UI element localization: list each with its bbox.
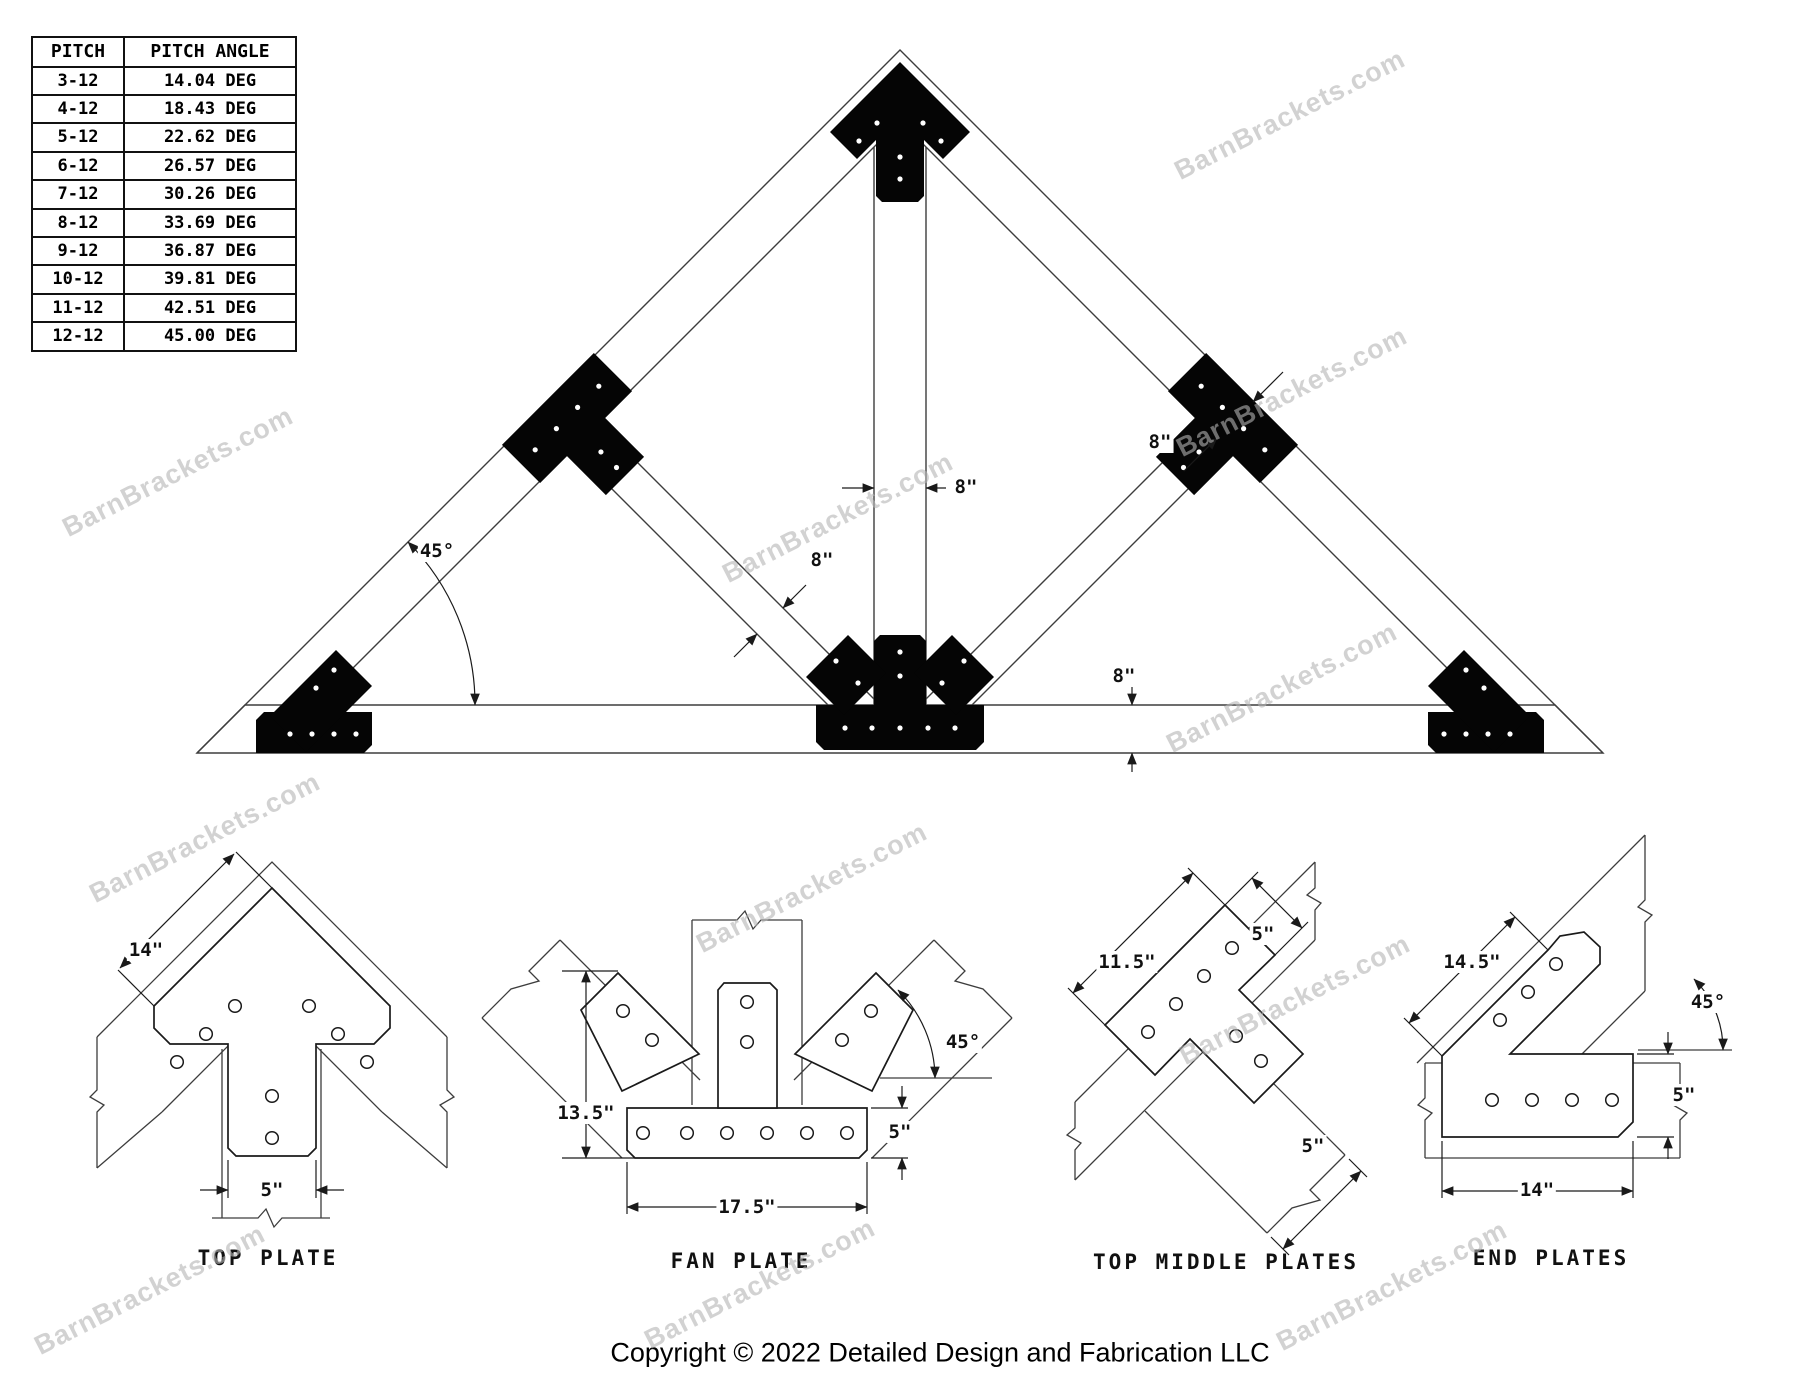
left-t-bracket [502,353,671,522]
pitch-table-cell: 14.04 DEG [124,67,296,95]
pitch-table-cell: 45.00 DEG [124,322,296,350]
copyright-text: Copyright © 2022 Detailed Design and Fab… [610,1338,1269,1369]
pitch-table-cell: 26.57 DEG [124,152,296,180]
dim-rafter-depth: 8" [1147,431,1174,453]
fan-plate-dim-angle: 45° [944,1031,982,1053]
top-plate-dim-slot: 5" [259,1179,286,1201]
pitch-table-cell: 39.81 DEG [124,265,296,293]
pitch-table-cell: 4-12 [32,95,124,123]
pitch-table-row: 6-1226.57 DEG [32,152,296,180]
pitch-table-row: 11-1242.51 DEG [32,294,296,322]
detail-plates [154,888,1633,1158]
pitch-table-row: 8-1233.69 DEG [32,209,296,237]
pitch-table-cell: 10-12 [32,265,124,293]
pitch-angle-header: PITCH ANGLE [124,37,296,67]
rafter-inner-edges [316,121,1484,705]
truss-bracket-drawing-page: { "watermark": { "text": "BarnBrackets.c… [0,0,1800,1391]
pitch-table-cell: 22.62 DEG [124,123,296,151]
pitch-table-cell: 12-12 [32,322,124,350]
pitch-header: PITCH [32,37,124,67]
end-plates-dim-edge: 14.5" [1441,951,1502,973]
pitch-table-cell: 30.26 DEG [124,180,296,208]
pitch-table-cell: 7-12 [32,180,124,208]
pitch-table-cell: 5-12 [32,123,124,151]
end-plates-dim-base: 14" [1518,1179,1556,1201]
top-middle-plates-title: TOP MIDDLE PLATES [1093,1250,1359,1274]
apex-arrow-bracket [830,62,970,202]
pitch-table-cell: 3-12 [32,67,124,95]
pitch-table-cell: 9-12 [32,237,124,265]
pitch-table-cell: 42.51 DEG [124,294,296,322]
pitch-table: PITCH PITCH ANGLE 3-1214.04 DEG4-1218.43… [31,36,297,352]
pitch-table-cell: 33.69 DEG [124,209,296,237]
pitch-table-row: 3-1214.04 DEG [32,67,296,95]
pitch-table-header-row: PITCH PITCH ANGLE [32,37,296,67]
truss-brackets [256,62,1544,753]
fan-plate-dim-base-height: 5" [887,1121,914,1143]
pitch-table-cell: 18.43 DEG [124,95,296,123]
end-plates-title: END PLATES [1473,1246,1629,1270]
pitch-table-cell: 36.87 DEG [124,237,296,265]
end-plates-dim-angle: 45° [1689,991,1727,1013]
pitch-table-cell: 6-12 [32,152,124,180]
end-plates-dim-height: 5" [1671,1084,1698,1106]
pitch-table-row: 9-1236.87 DEG [32,237,296,265]
bottom-fan-bracket [806,635,994,750]
top-middle-dim-width-lower: 5" [1300,1135,1327,1157]
top-plate-title: TOP PLATE [198,1246,339,1270]
pitch-table-row: 4-1218.43 DEG [32,95,296,123]
fan-plate-dim-height: 13.5" [555,1102,616,1124]
pitch-table-row: 12-1245.00 DEG [32,322,296,350]
top-plate-dim-edge: 14" [127,939,165,961]
pitch-table-cell: 11-12 [32,294,124,322]
top-middle-dim-length: 11.5" [1096,951,1157,973]
top-middle-dim-width-upper: 5" [1250,923,1277,945]
pitch-table-row: 5-1222.62 DEG [32,123,296,151]
pitch-table-cell: 8-12 [32,209,124,237]
fan-plate-title: FAN PLATE [671,1249,812,1273]
dim-chord-depth: 8" [1111,665,1138,687]
fan-plate-dim-base: 17.5" [716,1196,777,1218]
dim-web-width: 8" [809,549,836,571]
king-post [874,147,926,705]
dim-pitch-angle: 45° [418,540,456,562]
pitch-table-body: 3-1214.04 DEG4-1218.43 DEG5-1222.62 DEG6… [32,67,296,351]
top-plate-outline [154,888,390,1156]
pitch-table-row: 7-1230.26 DEG [32,180,296,208]
pitch-table-row: 10-1239.81 DEG [32,265,296,293]
dim-king-post-width: 8" [953,476,980,498]
